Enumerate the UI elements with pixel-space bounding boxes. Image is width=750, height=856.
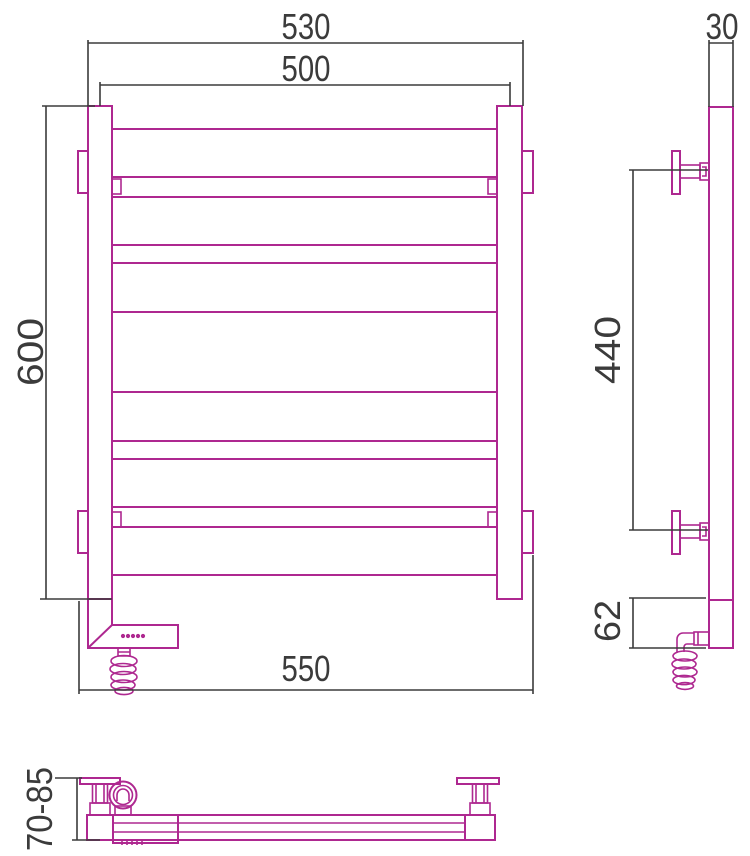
heating-element-box bbox=[88, 599, 178, 648]
dim-bracket-spacing: 440 bbox=[587, 170, 708, 530]
slat-1 bbox=[112, 129, 497, 177]
slat-3 bbox=[112, 263, 497, 312]
dim-center-width: 500 bbox=[100, 48, 510, 106]
led-indicators bbox=[121, 634, 145, 638]
mount-tube-bottom bbox=[112, 507, 497, 527]
bracket-bottom-left bbox=[78, 511, 88, 553]
dim-label-62: 62 bbox=[587, 600, 628, 642]
front-view bbox=[78, 106, 533, 695]
bottom-right-post-section bbox=[465, 815, 495, 840]
dim-label-600: 600 bbox=[10, 318, 51, 386]
bracket-top-right bbox=[522, 151, 533, 193]
side-bracket-bottom bbox=[672, 511, 709, 554]
towel-rail-drawing: 530 500 600 550 30 440 62 bbox=[0, 0, 750, 856]
dim-height: 600 bbox=[10, 106, 112, 599]
slat-5 bbox=[112, 459, 497, 507]
collar-top-right bbox=[488, 179, 497, 194]
bottom-view bbox=[80, 778, 499, 845]
cord-coil-axial bbox=[110, 782, 137, 816]
collar-bottom-right bbox=[488, 512, 497, 527]
collar-top-left bbox=[112, 179, 121, 194]
side-heater-housing bbox=[709, 600, 733, 648]
dim-label-30: 30 bbox=[706, 6, 739, 47]
bracket-top-left bbox=[78, 151, 88, 193]
dim-depth: 30 bbox=[706, 6, 739, 107]
left-post bbox=[88, 106, 112, 599]
slat-2 bbox=[112, 197, 497, 245]
slat-4 bbox=[112, 392, 497, 441]
bottom-rail bbox=[113, 815, 465, 840]
drawing-page: 530 500 600 550 30 440 62 bbox=[0, 0, 750, 856]
power-cord-coil-front bbox=[110, 648, 137, 695]
dim-label-70-85: 70-85 bbox=[19, 767, 60, 851]
collar-bottom-left bbox=[112, 512, 121, 527]
dim-label-500: 500 bbox=[282, 48, 331, 89]
bottom-bracket-right bbox=[457, 778, 499, 815]
mount-tube-top bbox=[112, 177, 497, 197]
side-view bbox=[672, 107, 733, 689]
side-post bbox=[709, 107, 733, 600]
dim-label-530: 530 bbox=[282, 6, 331, 47]
bottom-rail-inner-lines bbox=[113, 823, 464, 832]
dim-label-550: 550 bbox=[282, 648, 331, 689]
dim-heater-section: 62 bbox=[587, 598, 706, 648]
dim-label-440: 440 bbox=[587, 316, 628, 384]
power-cord-coil-side bbox=[672, 632, 709, 689]
bottom-heater-box bbox=[113, 815, 178, 843]
slat-6 bbox=[112, 527, 497, 575]
right-post bbox=[497, 106, 522, 599]
dimensions: 530 500 600 550 30 440 62 bbox=[10, 6, 739, 851]
side-bracket-top bbox=[672, 151, 709, 194]
bottom-left-post-section bbox=[87, 815, 113, 840]
bracket-bottom-right bbox=[522, 511, 533, 553]
